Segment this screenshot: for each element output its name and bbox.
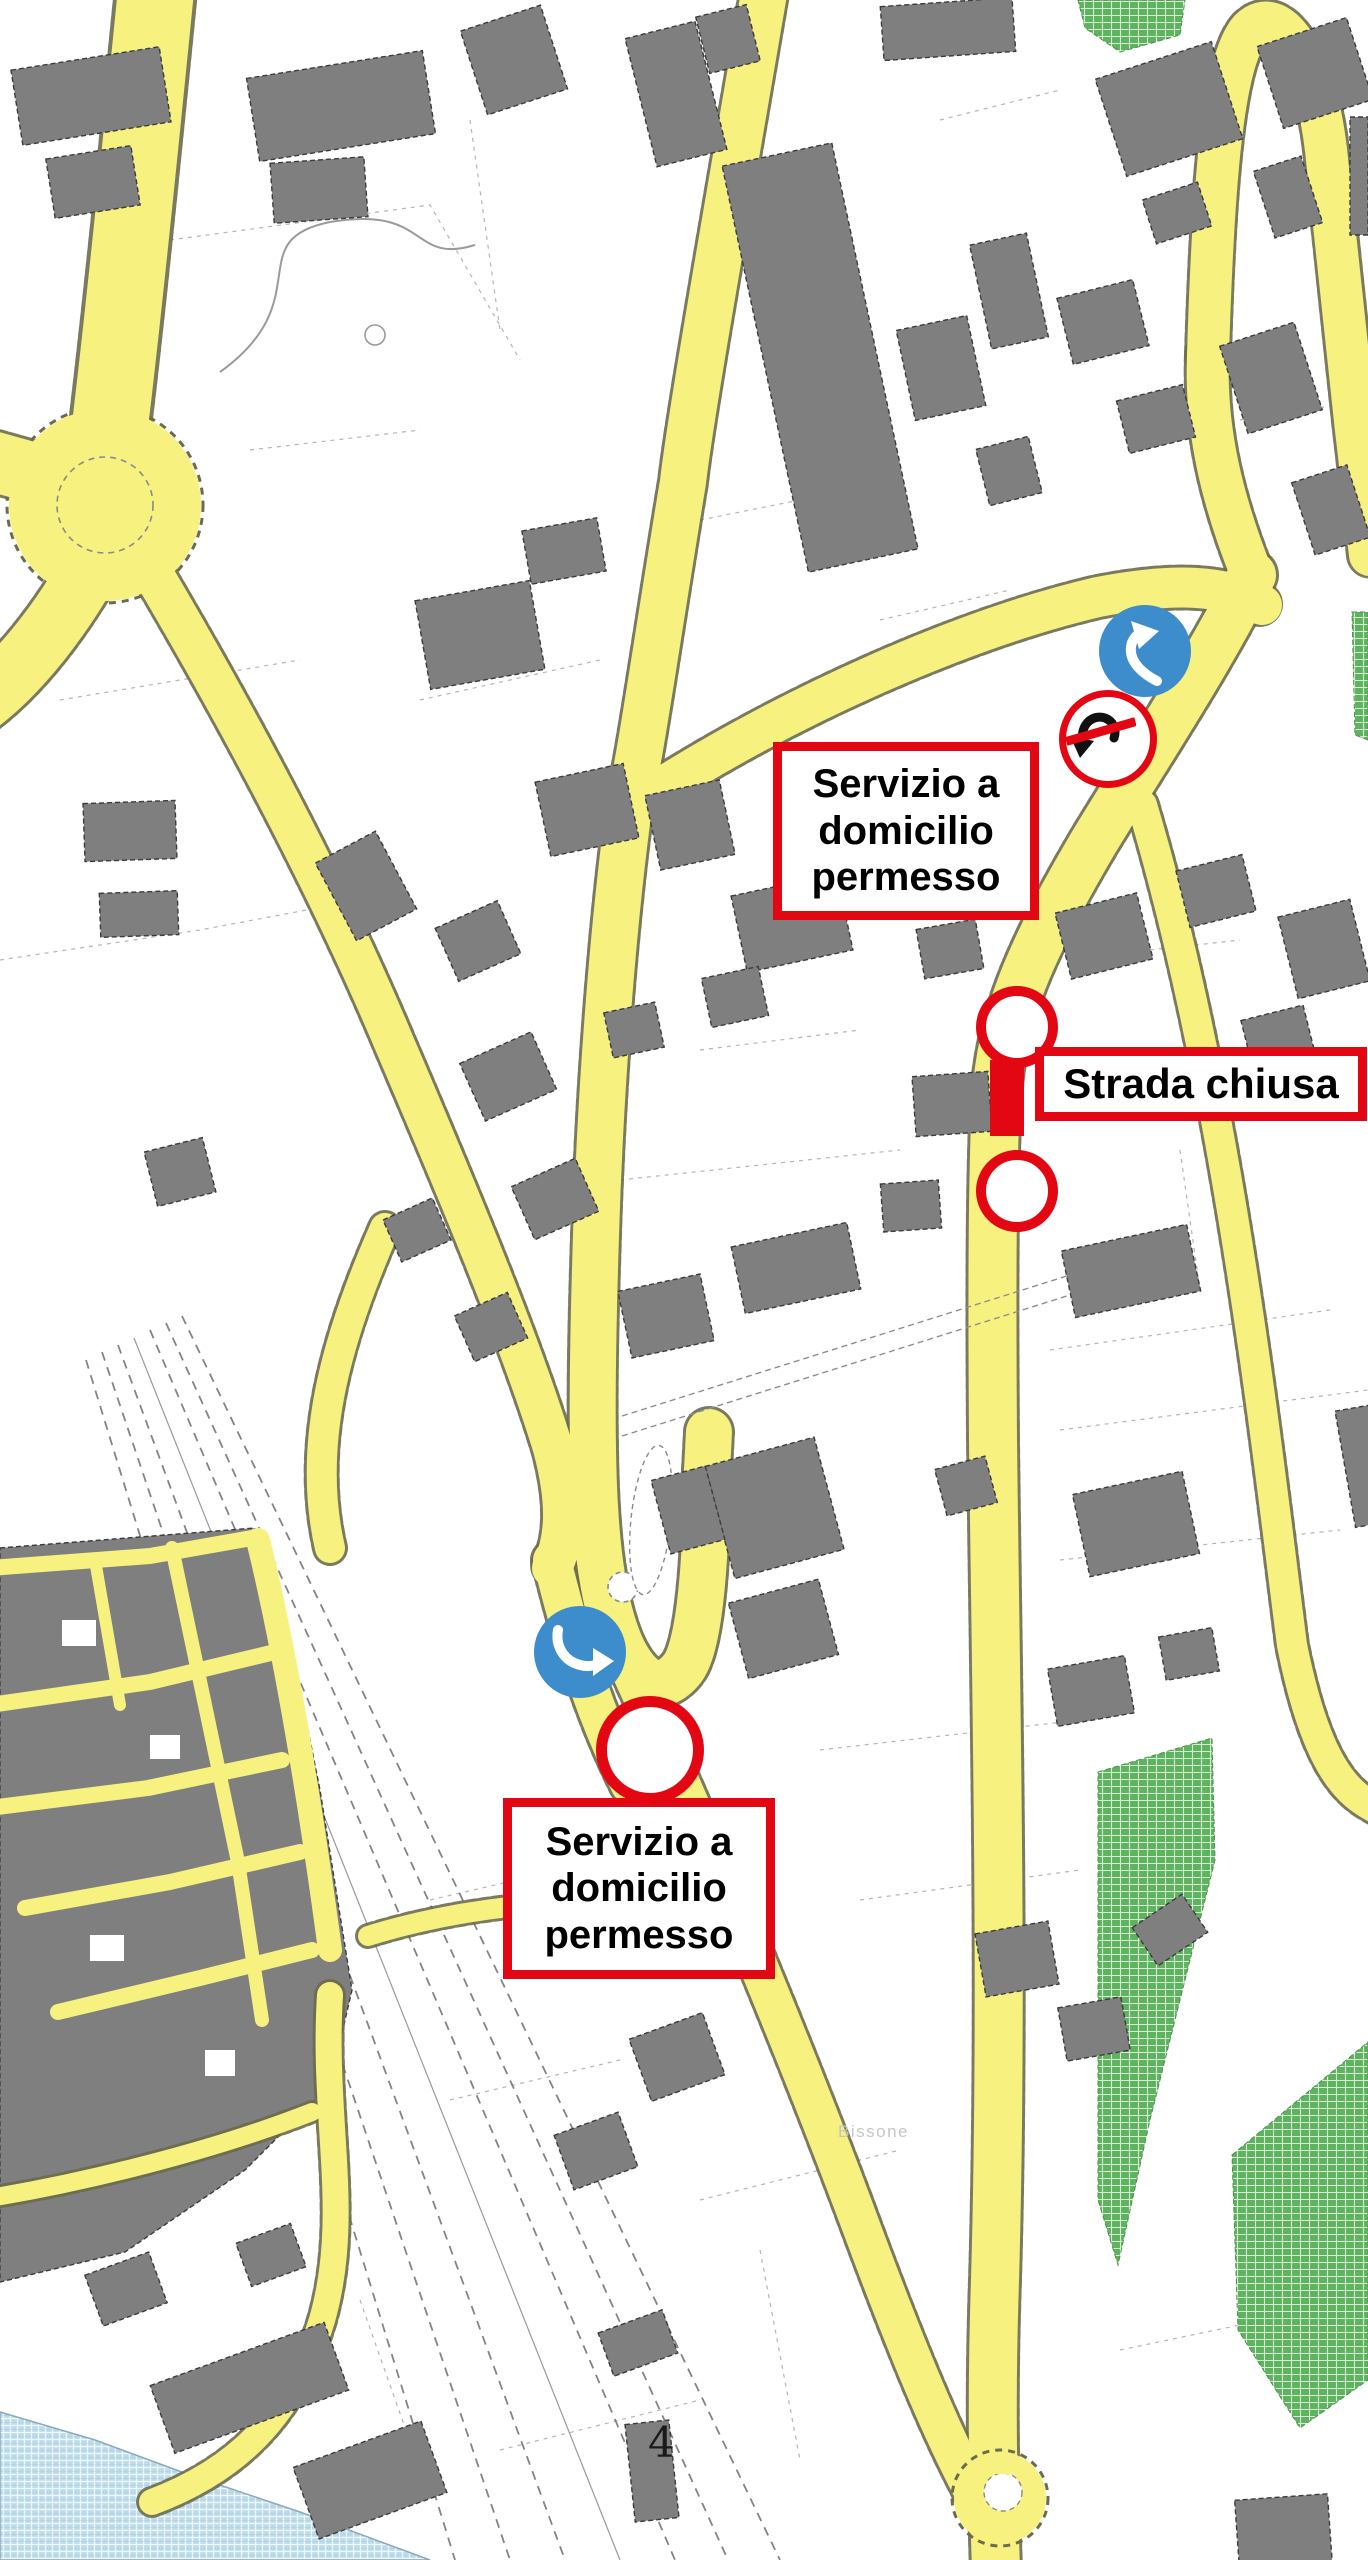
- service-permitted-box-bottom: Servizio a domicilio permesso: [503, 1798, 775, 1979]
- turn-right-arrow-icon: [534, 1606, 626, 1698]
- sheet-number-label: 4: [648, 2418, 675, 2467]
- traffic-plan-map: Bissone 4 Servizio a domicilio permesso …: [0, 0, 1368, 2560]
- cul-de-sac: [952, 2450, 1048, 2546]
- closure-ring-south: [976, 1150, 1058, 1232]
- road-closed-box: Strada chiusa: [1035, 1047, 1367, 1121]
- no-u-turn-sign: [1059, 690, 1157, 788]
- no-u-turn-icon: [1066, 697, 1136, 767]
- mandatory-turn-left-sign: [1099, 605, 1191, 697]
- mandatory-turn-right-sign: [534, 1606, 626, 1698]
- service-permitted-box-top: Servizio a domicilio permesso: [773, 742, 1039, 920]
- base-map: [0, 0, 1368, 2560]
- service-permitted-text-top: Servizio a domicilio permesso: [790, 761, 1022, 900]
- closure-ring-station: [596, 1696, 704, 1804]
- road-closed-text: Strada chiusa: [1063, 1060, 1338, 1108]
- place-label-bissone: Bissone: [838, 2122, 909, 2142]
- turn-left-arrow-icon: [1099, 605, 1191, 697]
- service-permitted-text-bottom: Servizio a domicilio permesso: [520, 1819, 758, 1958]
- closure-bar: [990, 1060, 1024, 1136]
